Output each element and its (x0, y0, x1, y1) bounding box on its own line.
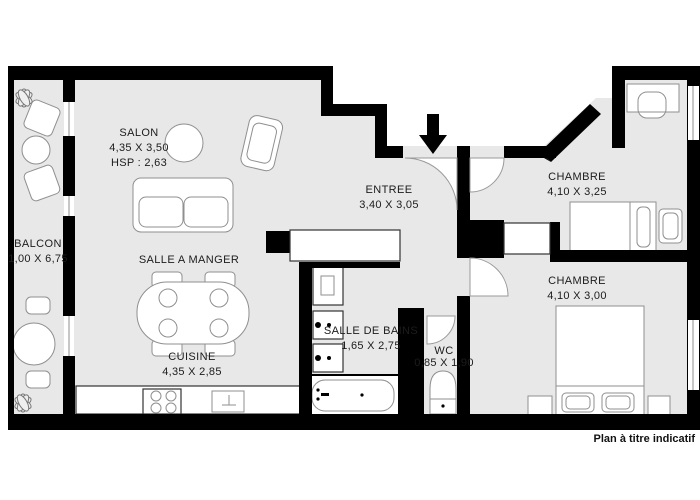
room-dims-chambre-haut: 4,10 X 3,25 (547, 186, 607, 198)
plan-disclaimer: Plan à titre indicatif (594, 433, 696, 445)
toilet-icon (430, 371, 456, 414)
room-dims-balcon: 1,00 X 6,75 (8, 253, 68, 265)
balcony-table-icon (22, 136, 50, 164)
floor-plan-canvas: SALON 4,35 X 3,50 HSP : 2,63 BALCON 1,00… (0, 0, 700, 500)
sofa-icon (133, 178, 233, 232)
kitchen-counter-icon (76, 386, 300, 414)
room-label-salon: SALON (119, 127, 158, 139)
closet-icon (290, 230, 400, 261)
room-label-entree: ENTREE (365, 184, 412, 196)
bathtub-icon (307, 375, 399, 416)
room-label-salle-a-manger: SALLE A MANGER (139, 254, 239, 266)
room-label-chambre-bas: CHAMBRE (548, 275, 606, 287)
room-dims-salon: 4,35 X 3,50 (109, 142, 169, 154)
floor-plan: SALON 4,35 X 3,50 HSP : 2,63 BALCON 1,00… (0, 0, 700, 500)
room-dims-salle-de-bains: 1,65 X 2,75 (341, 340, 401, 352)
room-label-chambre-haut: CHAMBRE (548, 171, 606, 183)
washing-machine-icon (313, 267, 343, 305)
dining-table-icon (137, 272, 249, 356)
room-label-cuisine: CUISINE (168, 351, 215, 363)
closet-icon (504, 223, 550, 254)
room-label-balcon: BALCON (14, 238, 62, 250)
room-label-wc: WC (434, 345, 453, 357)
room-label-salle-de-bains: SALLE DE BAINS (324, 325, 418, 337)
room-dims-entree: 3,40 X 3,05 (359, 199, 419, 211)
room-hsp-salon: HSP : 2,63 (111, 157, 167, 169)
coffee-table-icon (165, 124, 203, 162)
room-dims-wc: 0,85 X 1,90 (414, 357, 474, 369)
room-dims-cuisine: 4,35 X 2,85 (162, 366, 222, 378)
room-dims-chambre-bas: 4,10 X 3,00 (547, 290, 607, 302)
